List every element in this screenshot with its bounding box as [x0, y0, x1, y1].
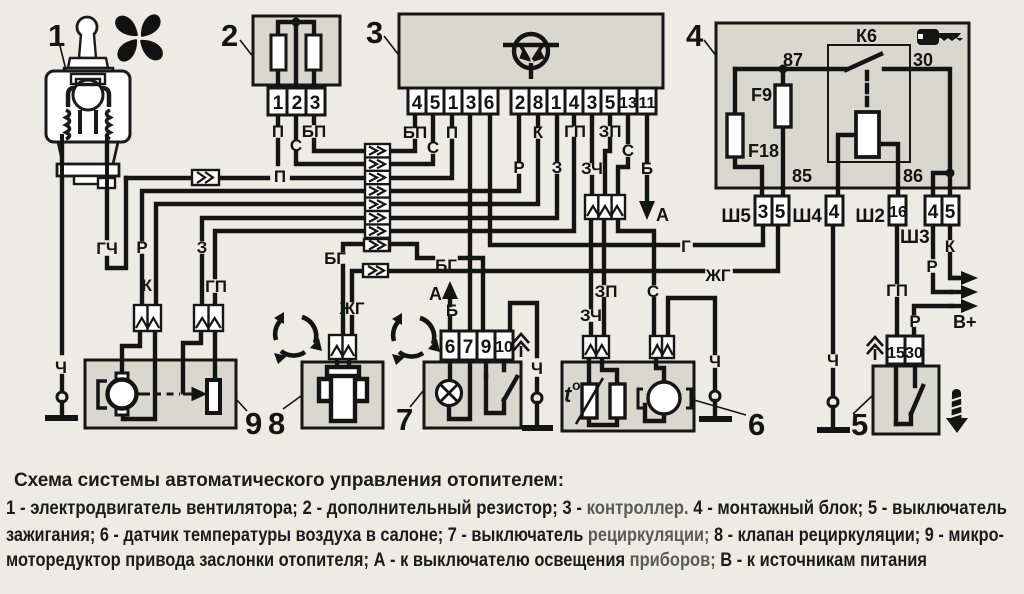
svg-text:85: 85: [792, 166, 812, 186]
svg-text:F18: F18: [748, 141, 779, 161]
svg-text:моторедуктор привода заслонки: моторедуктор привода заслонки отопителя;…: [6, 550, 927, 571]
svg-text:Р: Р: [513, 158, 524, 177]
svg-text:6: 6: [748, 407, 765, 442]
svg-text:Ш3: Ш3: [900, 227, 930, 248]
svg-text:4: 4: [829, 202, 840, 223]
svg-text:А: А: [656, 205, 669, 225]
svg-text:ЖГ: ЖГ: [704, 266, 730, 285]
svg-text:5: 5: [430, 93, 441, 114]
svg-text:БП: БП: [403, 123, 427, 142]
svg-text:11: 11: [639, 95, 656, 112]
svg-text:С: С: [647, 282, 659, 301]
svg-text:ЗП: ЗП: [599, 122, 622, 141]
svg-text:С: С: [290, 136, 302, 155]
svg-text:1: 1: [273, 93, 284, 114]
svg-text:К: К: [945, 237, 956, 256]
svg-text:Р: Р: [926, 257, 937, 276]
svg-text:Ш5: Ш5: [721, 206, 751, 227]
svg-text:Ч: Ч: [55, 358, 67, 377]
svg-text:2: 2: [515, 93, 526, 114]
svg-text:1: 1: [448, 93, 459, 114]
svg-text:8: 8: [533, 93, 544, 114]
svg-text:Б: Б: [641, 159, 653, 178]
svg-text:П: П: [274, 167, 286, 186]
svg-text:87: 87: [783, 50, 803, 70]
svg-text:3: 3: [758, 202, 769, 223]
svg-text:ГЧ: ГЧ: [96, 239, 118, 258]
svg-text:o: o: [572, 377, 581, 393]
svg-text:5: 5: [605, 93, 616, 114]
svg-text:П: П: [446, 123, 458, 142]
svg-text:4: 4: [686, 18, 704, 53]
svg-text:Р: Р: [909, 312, 920, 331]
svg-text:4: 4: [569, 93, 580, 114]
svg-text:4: 4: [928, 202, 939, 223]
svg-text:Б: Б: [446, 301, 458, 320]
svg-text:П: П: [272, 122, 284, 141]
svg-text:2: 2: [292, 93, 303, 114]
svg-text:Ш4: Ш4: [792, 206, 822, 227]
svg-text:зажигания; 6 - датчик температ: зажигания; 6 - датчик температуры воздух…: [6, 525, 1004, 546]
svg-text:9: 9: [245, 406, 262, 441]
svg-text:5: 5: [775, 202, 786, 223]
svg-text:С: С: [622, 141, 634, 160]
svg-text:3: 3: [587, 93, 598, 114]
svg-text:3: 3: [366, 15, 383, 50]
svg-text:ЗП: ЗП: [595, 282, 618, 301]
svg-text:С: С: [427, 138, 439, 157]
svg-text:Р: Р: [136, 238, 147, 257]
svg-text:6: 6: [445, 337, 456, 358]
svg-text:БГ: БГ: [435, 256, 457, 275]
svg-text:8: 8: [268, 406, 285, 441]
svg-text:К: К: [142, 276, 153, 295]
svg-text:86: 86: [903, 166, 923, 186]
svg-text:ЗЧ: ЗЧ: [581, 159, 603, 178]
svg-text:1 - электродвигатель вентилято: 1 - электродвигатель вентилятора; 2 - до…: [6, 498, 1007, 519]
svg-text:К: К: [533, 123, 544, 142]
svg-text:3: 3: [466, 93, 477, 114]
svg-text:13: 13: [619, 95, 637, 112]
svg-text:7: 7: [463, 337, 474, 358]
svg-text:6: 6: [484, 93, 495, 114]
svg-text:БГ: БГ: [324, 249, 346, 268]
svg-text:ГП: ГП: [886, 281, 908, 300]
svg-text:Ч: Ч: [827, 351, 839, 370]
svg-text:Схема системы автоматического: Схема системы автоматического управления…: [14, 470, 564, 491]
svg-text:З: З: [197, 238, 208, 257]
svg-text:F9: F9: [751, 85, 772, 105]
svg-text:9: 9: [481, 337, 492, 358]
svg-text:Ч: Ч: [709, 352, 721, 371]
svg-text:ГП: ГП: [205, 277, 227, 296]
svg-text:3: 3: [310, 93, 321, 114]
svg-text:15: 15: [887, 345, 905, 362]
svg-text:30: 30: [905, 345, 923, 362]
svg-text:ЗЧ: ЗЧ: [580, 306, 602, 325]
svg-text:А: А: [429, 284, 442, 304]
svg-text:ГП: ГП: [564, 122, 586, 141]
svg-text:Г: Г: [681, 237, 691, 256]
svg-text:ЖГ: ЖГ: [338, 299, 364, 318]
svg-text:Ч: Ч: [531, 359, 543, 378]
svg-text:4: 4: [412, 93, 423, 114]
svg-text:16: 16: [889, 204, 907, 221]
svg-text:З: З: [552, 158, 563, 177]
svg-text:К6: К6: [856, 26, 877, 46]
svg-text:Ш2: Ш2: [855, 206, 885, 227]
svg-text:5: 5: [945, 202, 956, 223]
svg-text:30: 30: [913, 50, 933, 70]
svg-text:В+: В+: [953, 312, 977, 332]
svg-text:БП: БП: [302, 122, 326, 141]
svg-text:1: 1: [48, 18, 65, 53]
svg-text:1: 1: [551, 93, 562, 114]
svg-text:2: 2: [221, 18, 238, 53]
svg-text:10: 10: [495, 339, 513, 356]
svg-text:5: 5: [851, 407, 868, 442]
svg-text:7: 7: [396, 402, 413, 437]
